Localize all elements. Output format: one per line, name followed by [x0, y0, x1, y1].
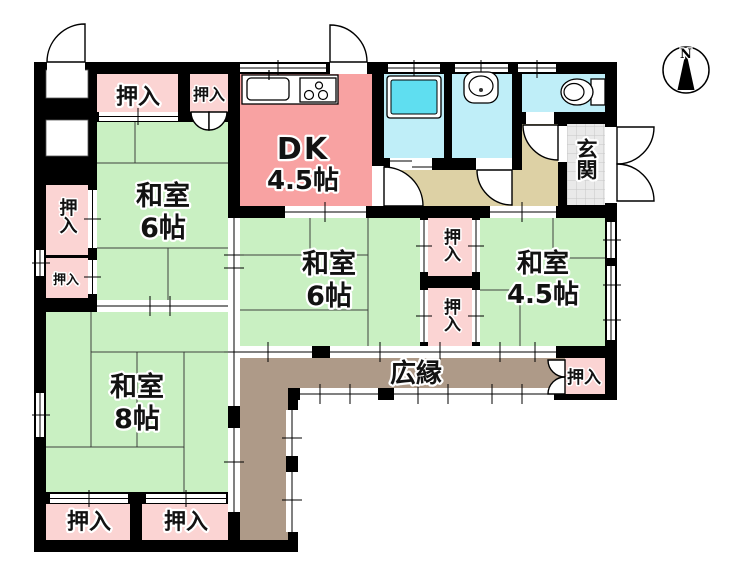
- compass-north-icon: N: [663, 47, 709, 93]
- closet-label-mid-top: 押入: [440, 227, 461, 262]
- opening-dk-hall: [372, 166, 384, 206]
- closet-label-mid-bottom: 押入: [440, 297, 461, 332]
- opening-rear-door: [47, 62, 85, 74]
- closet-label-top-large: 押入: [116, 84, 160, 110]
- rear-entry-niche-bottom: [46, 120, 88, 156]
- closet-label-west-small: 押入: [53, 272, 79, 288]
- closet-label-south-left: 押入: [67, 509, 111, 535]
- closet-label-south-right: 押入: [164, 509, 208, 535]
- kitchen-sink-icon: [247, 78, 289, 100]
- label-genkan: 玄関: [574, 137, 598, 181]
- closet-label-southeast: 押入: [567, 367, 601, 388]
- wall-post-1: [312, 346, 330, 358]
- opening-toilet: [526, 112, 554, 124]
- label-dk-name: DK: [277, 132, 329, 167]
- compass-north-label: N: [680, 47, 692, 62]
- label-washitsu-east-name: 和室: [517, 248, 569, 279]
- opening-kitchen-door: [330, 62, 367, 74]
- floor-plan: DK 4.5帖 和室 6帖 和室 6帖 和室 4.5帖 和室 8帖 広縁 玄関 …: [0, 0, 740, 567]
- opening-front-door: [605, 127, 617, 203]
- closet-label-top-small: 押入: [193, 85, 225, 104]
- washbasin-drain: [479, 88, 483, 92]
- label-washitsu-sw-name: 和室: [110, 371, 164, 403]
- label-washitsu-center-size: 6帖: [306, 281, 352, 312]
- bathtub-water: [391, 80, 437, 114]
- label-dk-size: 4.5帖: [267, 166, 339, 196]
- label-hiroen: 広縁: [390, 358, 442, 389]
- opening-washroom: [476, 158, 512, 170]
- label-washitsu-nw-name: 和室: [136, 180, 190, 212]
- toilet-icon: [561, 79, 593, 105]
- closet-label-west-tall: 押入: [57, 197, 78, 234]
- opening-hall-genkan: [558, 126, 567, 162]
- rear-entry-niche-top: [46, 70, 88, 98]
- label-washitsu-sw-size: 8帖: [114, 404, 160, 435]
- label-washitsu-nw-size: 6帖: [140, 213, 186, 244]
- label-washitsu-center-name: 和室: [302, 248, 356, 280]
- label-washitsu-east-size: 4.5帖: [507, 280, 579, 310]
